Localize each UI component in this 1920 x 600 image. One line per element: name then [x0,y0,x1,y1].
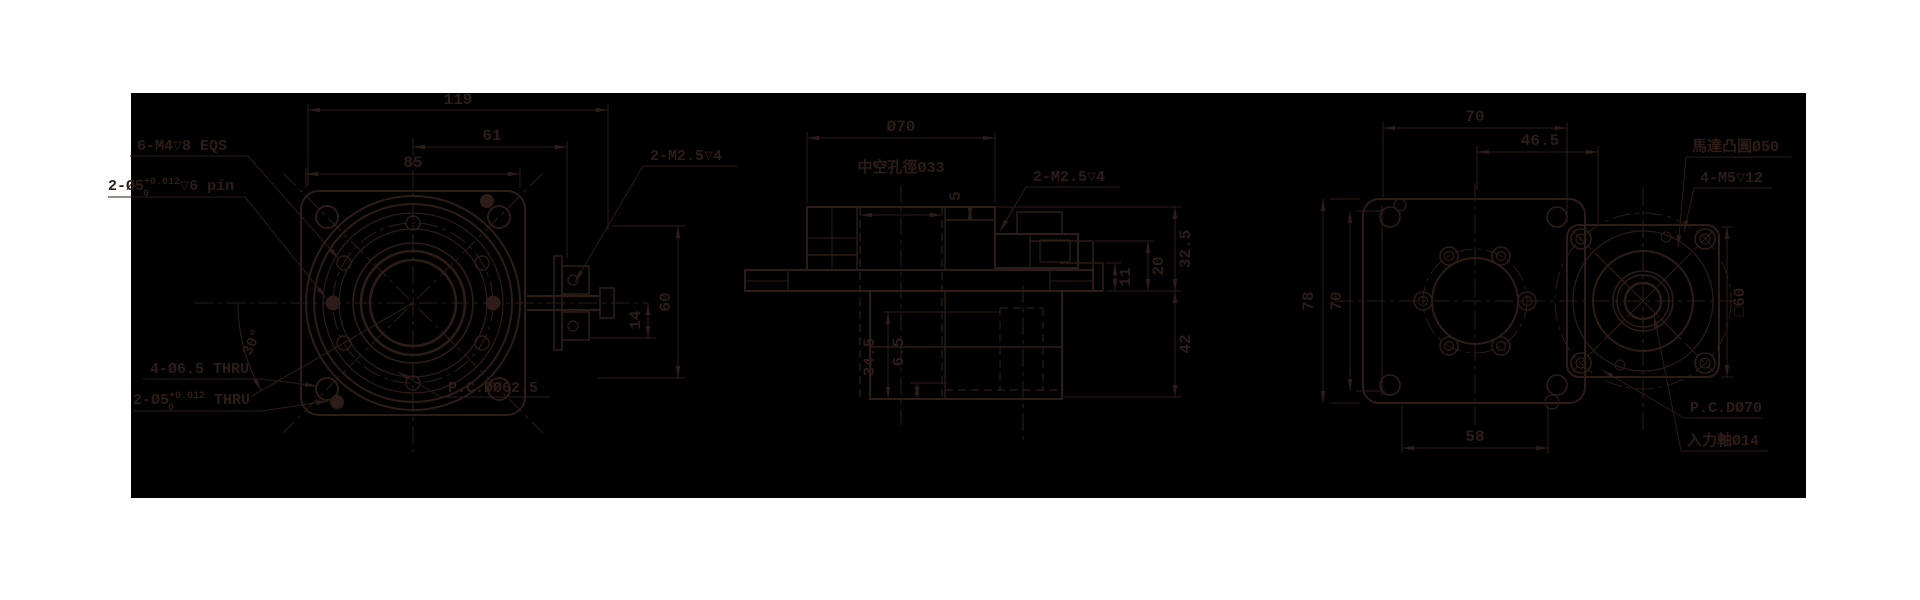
pin2-base: 2-Ø5 [133,392,169,409]
dim-70-left-text: 70 [1328,291,1346,310]
label-rear-pcd-text: P.C.DØ70 [1690,400,1762,417]
dim-70-top-text: 70 [1465,108,1484,126]
dim-6-5-text: 6.5 [890,338,908,367]
label-input-shaft-text: 入力軸Ø14 [1687,431,1759,450]
dim-dia70-text: Ø70 [887,118,916,136]
dim-60-text: 60 [657,292,675,311]
label-motor-boss-text: 馬達凸圓Ø50 [1692,137,1779,156]
dim-34-5-text: 34.5 [861,338,879,376]
dim-42-text: 42 [1177,334,1195,353]
dim-sq60-text: □60 [1731,288,1749,317]
label-front-screws-text: 6-M4▽8 EQS [137,138,227,155]
dim-20-text: 20 [1150,256,1168,275]
dim-46-5-text: 46.5 [1521,132,1559,150]
label-front-tab-screws-text: 2-M2.5▽4 [650,148,722,165]
dim-58-text: 58 [1465,428,1484,446]
pin-sup: +0.012 [144,177,180,188]
dim-85-text: 85 [403,154,422,172]
pin-sub: 0 [143,189,149,200]
label-hollow-bore-text: 中空孔徑Ø33 [857,158,944,177]
label-section-screws-text: 2-M2.5▽4 [1033,169,1105,186]
dim-14-text: 14 [627,310,645,330]
label-corner-holes-text: 4-Ø6.5 THRU [150,361,249,378]
dim-11-text: 11 [1117,267,1135,286]
dim-5-text: 5 [947,191,965,201]
label-front-pcd-text: P.C.DØ62.5 [448,380,538,397]
dim-61-text: 61 [482,127,501,145]
cad-drawing-canvas: 119 61 85 14 60 30° 6-M4 [0,0,1920,600]
dim-32-5-text: 32.5 [1177,230,1195,268]
pin-rest: ▽6 pin [180,178,234,195]
pin2-sup: +0.012 [169,391,205,402]
pin-base: 2-Ø5 [108,178,144,195]
pin2-rest: THRU [205,392,250,409]
pin2-sub: 0 [168,403,174,414]
dim-78-text: 78 [1300,291,1318,310]
dim-119-text: 119 [444,91,473,109]
label-rear-screws-text: 4-M5▽12 [1700,170,1763,187]
